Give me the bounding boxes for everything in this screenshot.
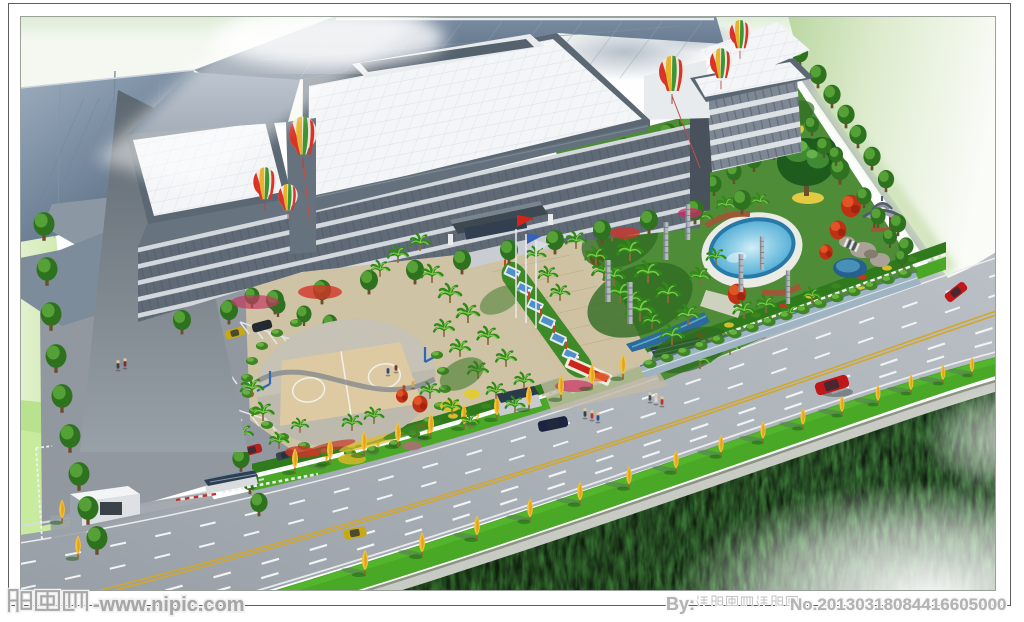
svg-text:No.20130318084416605000: No.20130318084416605000 <box>790 595 1006 614</box>
svg-text:-www.nipic.com: -www.nipic.com <box>93 594 245 616</box>
svg-text:By:: By: <box>666 594 695 614</box>
